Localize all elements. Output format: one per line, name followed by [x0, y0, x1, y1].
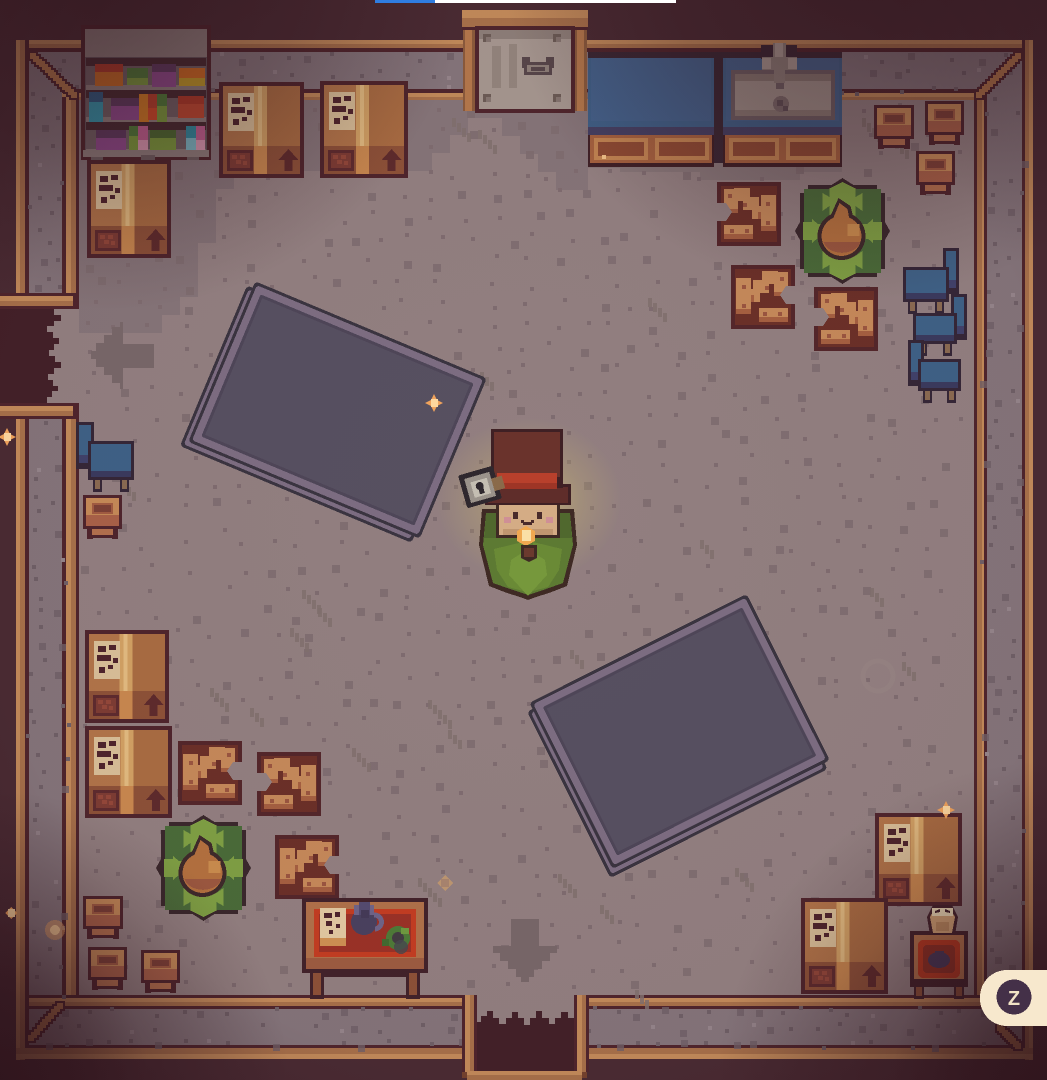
- svg-text:Z: Z: [1008, 988, 1020, 1010]
